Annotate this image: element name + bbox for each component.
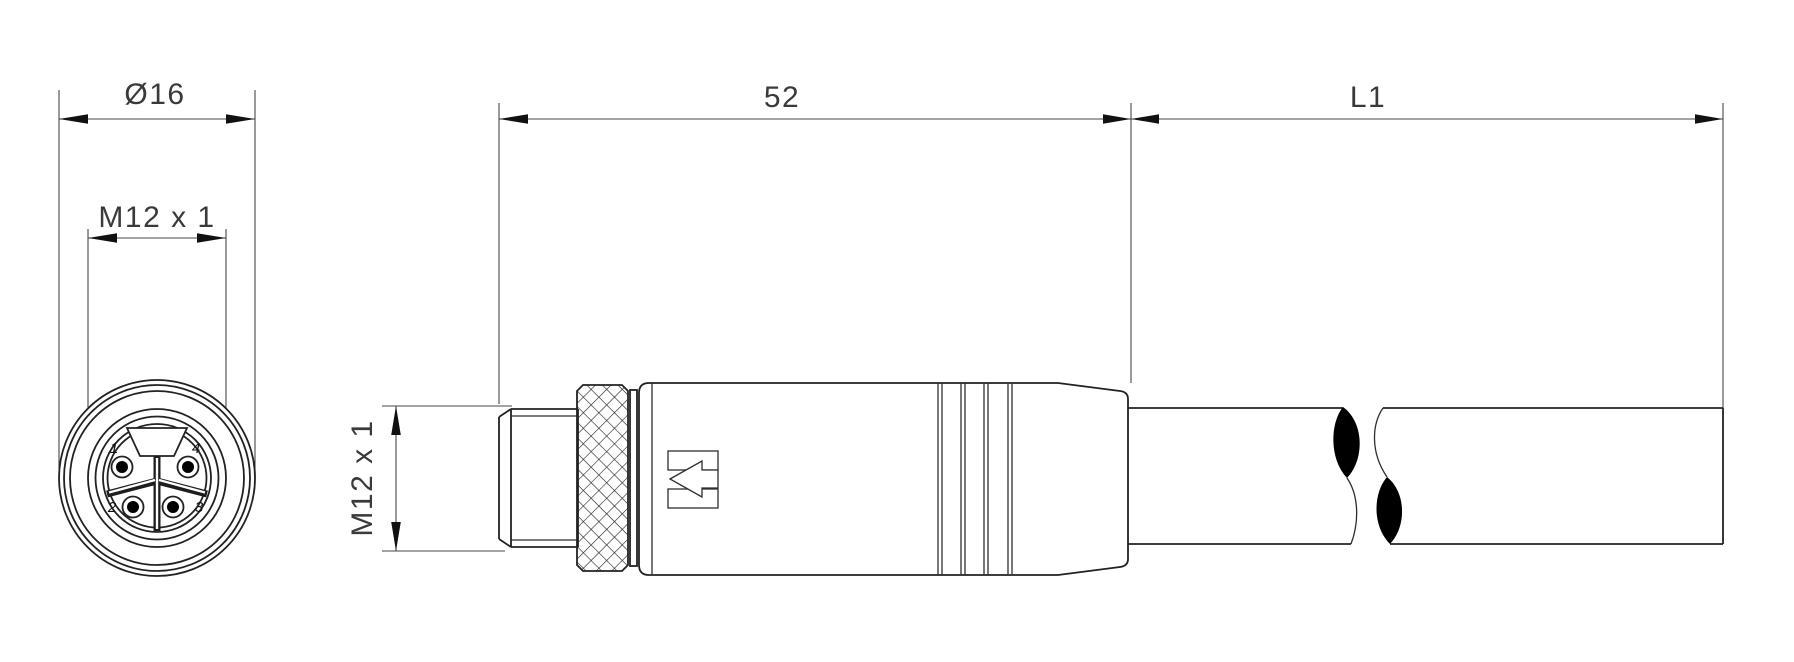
- dim-front-thread: M12 x 1: [88, 201, 226, 409]
- m12-connector-drawing: Ø16 M12 x 1: [0, 0, 1794, 662]
- coupling-nut-knurl: [577, 385, 628, 571]
- socket-1: [112, 457, 133, 478]
- arrowhead-left-icon: [88, 233, 117, 243]
- dim-side-thread: M12 x 1: [346, 406, 512, 551]
- pin-label-3: 3: [195, 499, 204, 516]
- socket-2: [123, 497, 144, 518]
- pin-label-1: 1: [110, 440, 118, 457]
- arrowhead-left-icon: [499, 114, 528, 124]
- socket-4: [178, 457, 199, 478]
- coding-keyway: [127, 428, 187, 456]
- arrowhead-up-icon: [391, 406, 401, 435]
- arrowhead-right-icon: [226, 114, 255, 124]
- arrowhead-left-icon: [1131, 114, 1159, 124]
- pin-label-4: 4: [192, 440, 200, 457]
- arrowhead-right-icon: [1695, 114, 1723, 124]
- cable-length-label: L1: [1350, 81, 1386, 114]
- cable-break-symbol: [1333, 407, 1402, 544]
- side-thread-label: M12 x 1: [346, 419, 379, 536]
- arrowhead-down-icon: [391, 522, 401, 551]
- front-thread-label: M12 x 1: [98, 201, 215, 234]
- pin-label-2: 2: [107, 499, 117, 516]
- front-view: Ø16 M12 x 1: [59, 78, 255, 576]
- arrow-emblem-icon: [668, 451, 718, 508]
- cable: [1128, 407, 1723, 544]
- side-view: 52 L1 M12 x 1: [346, 81, 1723, 575]
- arrowhead-right-icon: [197, 233, 226, 243]
- body-grooves: [938, 383, 1012, 575]
- outer-diameter-label: Ø16: [124, 78, 185, 111]
- technical-drawing-page: Ø16 M12 x 1: [0, 0, 1794, 662]
- arrowhead-left-icon: [59, 114, 88, 124]
- body-ring: [630, 390, 637, 566]
- arrowhead-right-icon: [1103, 114, 1131, 124]
- connector-face: 1 4 2 3: [59, 380, 255, 576]
- connector-body: [639, 383, 1128, 575]
- dim-lengths: 52 L1: [499, 81, 1723, 408]
- connector-length-label: 52: [764, 81, 800, 114]
- threaded-stud: [499, 409, 578, 547]
- socket-3: [163, 497, 184, 518]
